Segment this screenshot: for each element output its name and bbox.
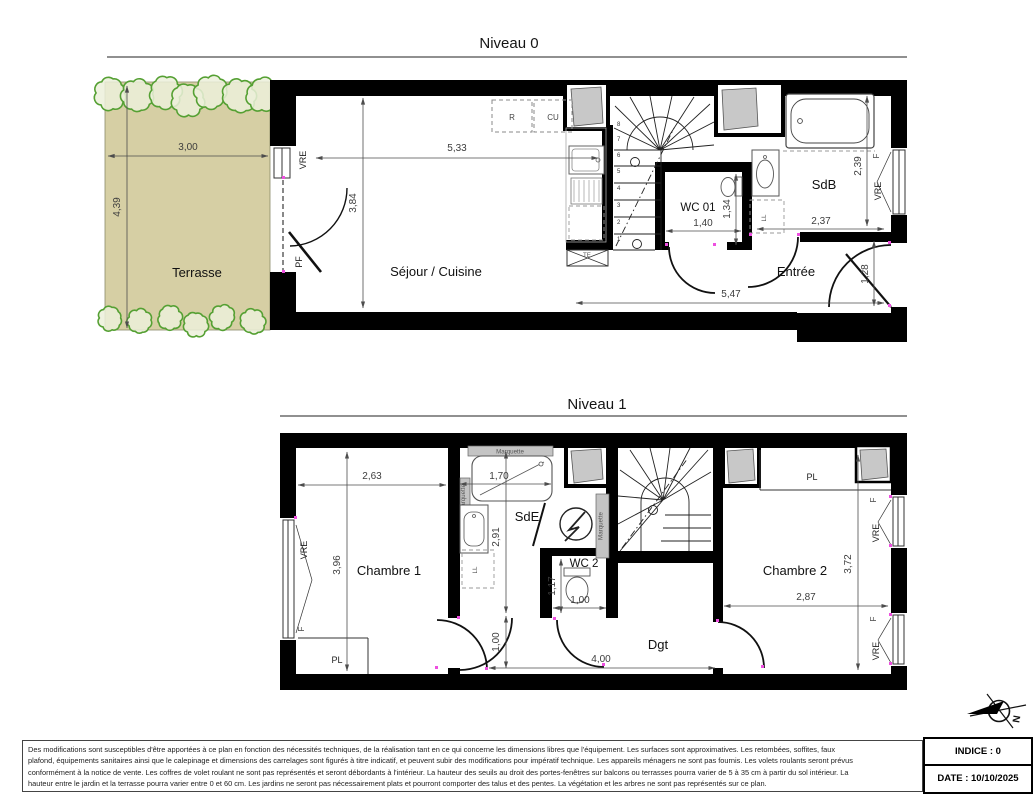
dishwasher-slot bbox=[569, 206, 604, 240]
dim-chambre1-door: 1,00 bbox=[491, 632, 502, 652]
f-left-tag: F bbox=[297, 626, 306, 631]
dim-chambre2-depth: 3,72 bbox=[843, 554, 854, 574]
dim-chambre2-width: 2,87 bbox=[796, 592, 816, 603]
pl-chambre1-tag: PL bbox=[331, 655, 342, 665]
stair-number: 3 bbox=[617, 203, 621, 209]
vre-right-tag: VRE bbox=[873, 182, 883, 201]
stair-number: 1 bbox=[617, 237, 621, 243]
date-value: DATE : 10/10/2025 bbox=[925, 766, 1031, 793]
washer-slot: LL bbox=[750, 200, 784, 233]
bathtub-icon bbox=[783, 94, 875, 151]
dim-shower-width: 1,70 bbox=[489, 471, 509, 482]
fridge-label: R bbox=[509, 113, 515, 122]
stair-number: 2 bbox=[617, 220, 621, 226]
dim-wc2-depth: 1,17 bbox=[547, 576, 558, 596]
sde-washbasin-icon bbox=[460, 505, 488, 553]
disclaimer-line: plafond, équipements sanitaires ainsi qu… bbox=[28, 755, 917, 766]
stair-number: 8 bbox=[617, 122, 621, 128]
dim-sdb-width: 2,37 bbox=[811, 216, 831, 227]
stair-number: 7 bbox=[617, 137, 621, 143]
stair-numbers: 1 2 3 4 5 6 7 8 bbox=[617, 122, 621, 243]
niveau1-plan: Niveau 1 bbox=[280, 396, 907, 690]
pl-chambre2-tag: PL bbox=[806, 472, 817, 482]
f-right-tag: F bbox=[872, 153, 881, 158]
disclaimer-box: Des modifications sont susceptibles d'êt… bbox=[22, 740, 923, 792]
drainer-icon bbox=[571, 178, 602, 204]
dgt-label: Dgt bbox=[648, 637, 669, 652]
washer-slot: LL bbox=[462, 550, 494, 588]
dim-entree-door: 1,28 bbox=[860, 264, 871, 284]
compass-icon: N bbox=[967, 694, 1026, 728]
stair-number: 6 bbox=[617, 153, 621, 159]
disclaimer-line: Des modifications sont susceptibles d'êt… bbox=[28, 744, 917, 755]
compass-north-label: N bbox=[1009, 714, 1021, 723]
sde-label: SdE bbox=[515, 509, 540, 524]
niveau0-plan: Niveau 0 Terrasse bbox=[94, 35, 907, 342]
sink-icon bbox=[569, 146, 604, 174]
dim-dgt-width: 4,00 bbox=[591, 654, 611, 665]
chambre2-label: Chambre 2 bbox=[763, 563, 827, 578]
dim-sejour-depth: 3,84 bbox=[348, 193, 359, 213]
disclaimer-line: hauteur entre le jardin et la terrasse p… bbox=[28, 778, 917, 789]
shower-tray-icon bbox=[472, 456, 552, 501]
f-top-right-tag: F bbox=[869, 497, 878, 502]
te-label: TE bbox=[583, 252, 591, 259]
niveau1-title: Niveau 1 bbox=[567, 396, 626, 413]
sdb-label: SdB bbox=[812, 177, 837, 192]
ll-label: LL bbox=[761, 214, 768, 221]
sejour-label: Séjour / Cuisine bbox=[390, 264, 482, 279]
stairs-niveau1 bbox=[618, 448, 711, 551]
floorplan-drawing: Niveau 0 Terrasse bbox=[0, 0, 1033, 738]
dim-wc2-width: 1,00 bbox=[570, 595, 590, 606]
disclaimer-line: conformément à la notice de vente. Les c… bbox=[28, 767, 917, 778]
electrical-panel-icon: TE bbox=[567, 250, 608, 266]
stair-number: 5 bbox=[617, 169, 621, 175]
dim-chambre1-depth: 3,96 bbox=[332, 555, 343, 575]
chambre1-label: Chambre 1 bbox=[357, 563, 421, 578]
indice-value: INDICE : 0 bbox=[925, 739, 1031, 766]
vre-top-right-tag: VRE bbox=[871, 524, 881, 543]
ll-label: LL bbox=[472, 566, 479, 573]
water-heater-icon bbox=[560, 508, 592, 541]
marquette-right-label: Marquette bbox=[598, 512, 605, 540]
dim-chambre1-width: 2,63 bbox=[362, 471, 382, 482]
dim-terrasse-depth: 4,39 bbox=[112, 197, 123, 217]
jamb-markers bbox=[294, 495, 892, 670]
dim-entree-width: 5,47 bbox=[721, 289, 741, 300]
marquette-top-label: Marquette bbox=[496, 449, 524, 456]
terrasse-label: Terrasse bbox=[172, 265, 222, 280]
wc01-label: WC 01 bbox=[680, 202, 715, 214]
dim-sdb-depth: 2,39 bbox=[853, 156, 864, 176]
toilet-icon bbox=[721, 177, 742, 197]
niveau1-windows bbox=[283, 497, 904, 664]
dim-sejour-width: 5,33 bbox=[447, 143, 467, 154]
niveau0-title: Niveau 0 bbox=[479, 35, 538, 52]
wc2-label: WC 2 bbox=[570, 558, 599, 570]
dim-wc-depth: 1,34 bbox=[722, 199, 733, 219]
title-block: INDICE : 0 DATE : 10/10/2025 bbox=[923, 737, 1033, 794]
cooktop-label: CU bbox=[547, 113, 559, 122]
entree-label: Entrée bbox=[777, 264, 815, 279]
stair-number: 4 bbox=[617, 186, 621, 192]
pf-tag: PF bbox=[294, 256, 304, 268]
dim-wc-width: 1,40 bbox=[693, 218, 713, 229]
washbasin-icon bbox=[752, 150, 779, 196]
vre-left-tag: VRE bbox=[298, 151, 308, 170]
vre-left-tag: VRE bbox=[299, 541, 309, 560]
f-bottom-right-tag: F bbox=[869, 616, 878, 621]
vre-bottom-right-tag: VRE bbox=[871, 642, 881, 661]
dim-sde-depth: 2,91 bbox=[491, 527, 502, 547]
dim-terrasse-width: 3,00 bbox=[178, 142, 198, 153]
